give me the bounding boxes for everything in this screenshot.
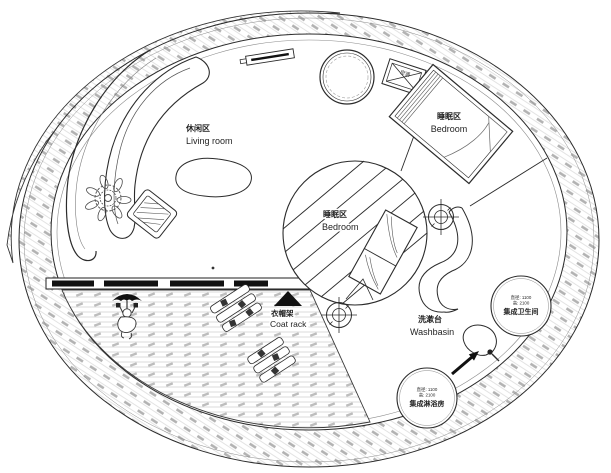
flow-arrow <box>452 351 479 374</box>
vanity-counter <box>419 207 472 312</box>
bathroom-pod-name: 集成卫生间 <box>503 307 539 316</box>
shower-pod-height: 高: 2100 <box>419 392 436 399</box>
living-room-label-en: Living room <box>186 136 233 146</box>
basin <box>463 325 499 361</box>
washbasin-label-en: Washbasin <box>410 327 454 337</box>
floor-plan-drawing: 空调 <box>0 0 611 473</box>
washbasin-label-zh: 洗漱台 <box>418 314 442 324</box>
shower-pod: 直径: 1100 高: 2100 集成淋浴房 <box>397 368 457 428</box>
wall-shelf <box>240 49 295 66</box>
round-table <box>320 50 374 104</box>
basin-drain <box>487 349 492 354</box>
coffee-table <box>176 158 252 197</box>
bedroom-upper-label-en: Bedroom <box>431 124 468 134</box>
bathroom-pod-diameter: 直径: 1100 <box>511 294 532 300</box>
floor-plan: 空调 <box>0 0 611 473</box>
faucet <box>492 354 499 361</box>
bathroom-pod-height: 高: 2100 <box>513 300 530 307</box>
bathroom-pod: 直径: 1100 高: 2100 集成卫生间 <box>491 276 551 336</box>
living-room-label-zh: 休闲区 <box>185 123 210 133</box>
shower-pod-name: 集成淋浴房 <box>409 399 445 408</box>
axis-marker-right <box>423 199 459 235</box>
coat-rack-label-zh: 衣帽架 <box>271 308 294 318</box>
bedroom-center-platform <box>283 161 427 305</box>
shower-pod-diameter: 直径: 1100 <box>417 386 438 392</box>
coat-rack-label-en: Coat rack <box>270 319 307 329</box>
reference-dot <box>212 267 215 270</box>
bedroom-upper-label-zh: 睡眠区 <box>437 111 461 121</box>
bedroom-center-label-en: Bedroom <box>322 222 359 232</box>
bedroom-center-label-zh: 睡眠区 <box>323 209 347 219</box>
